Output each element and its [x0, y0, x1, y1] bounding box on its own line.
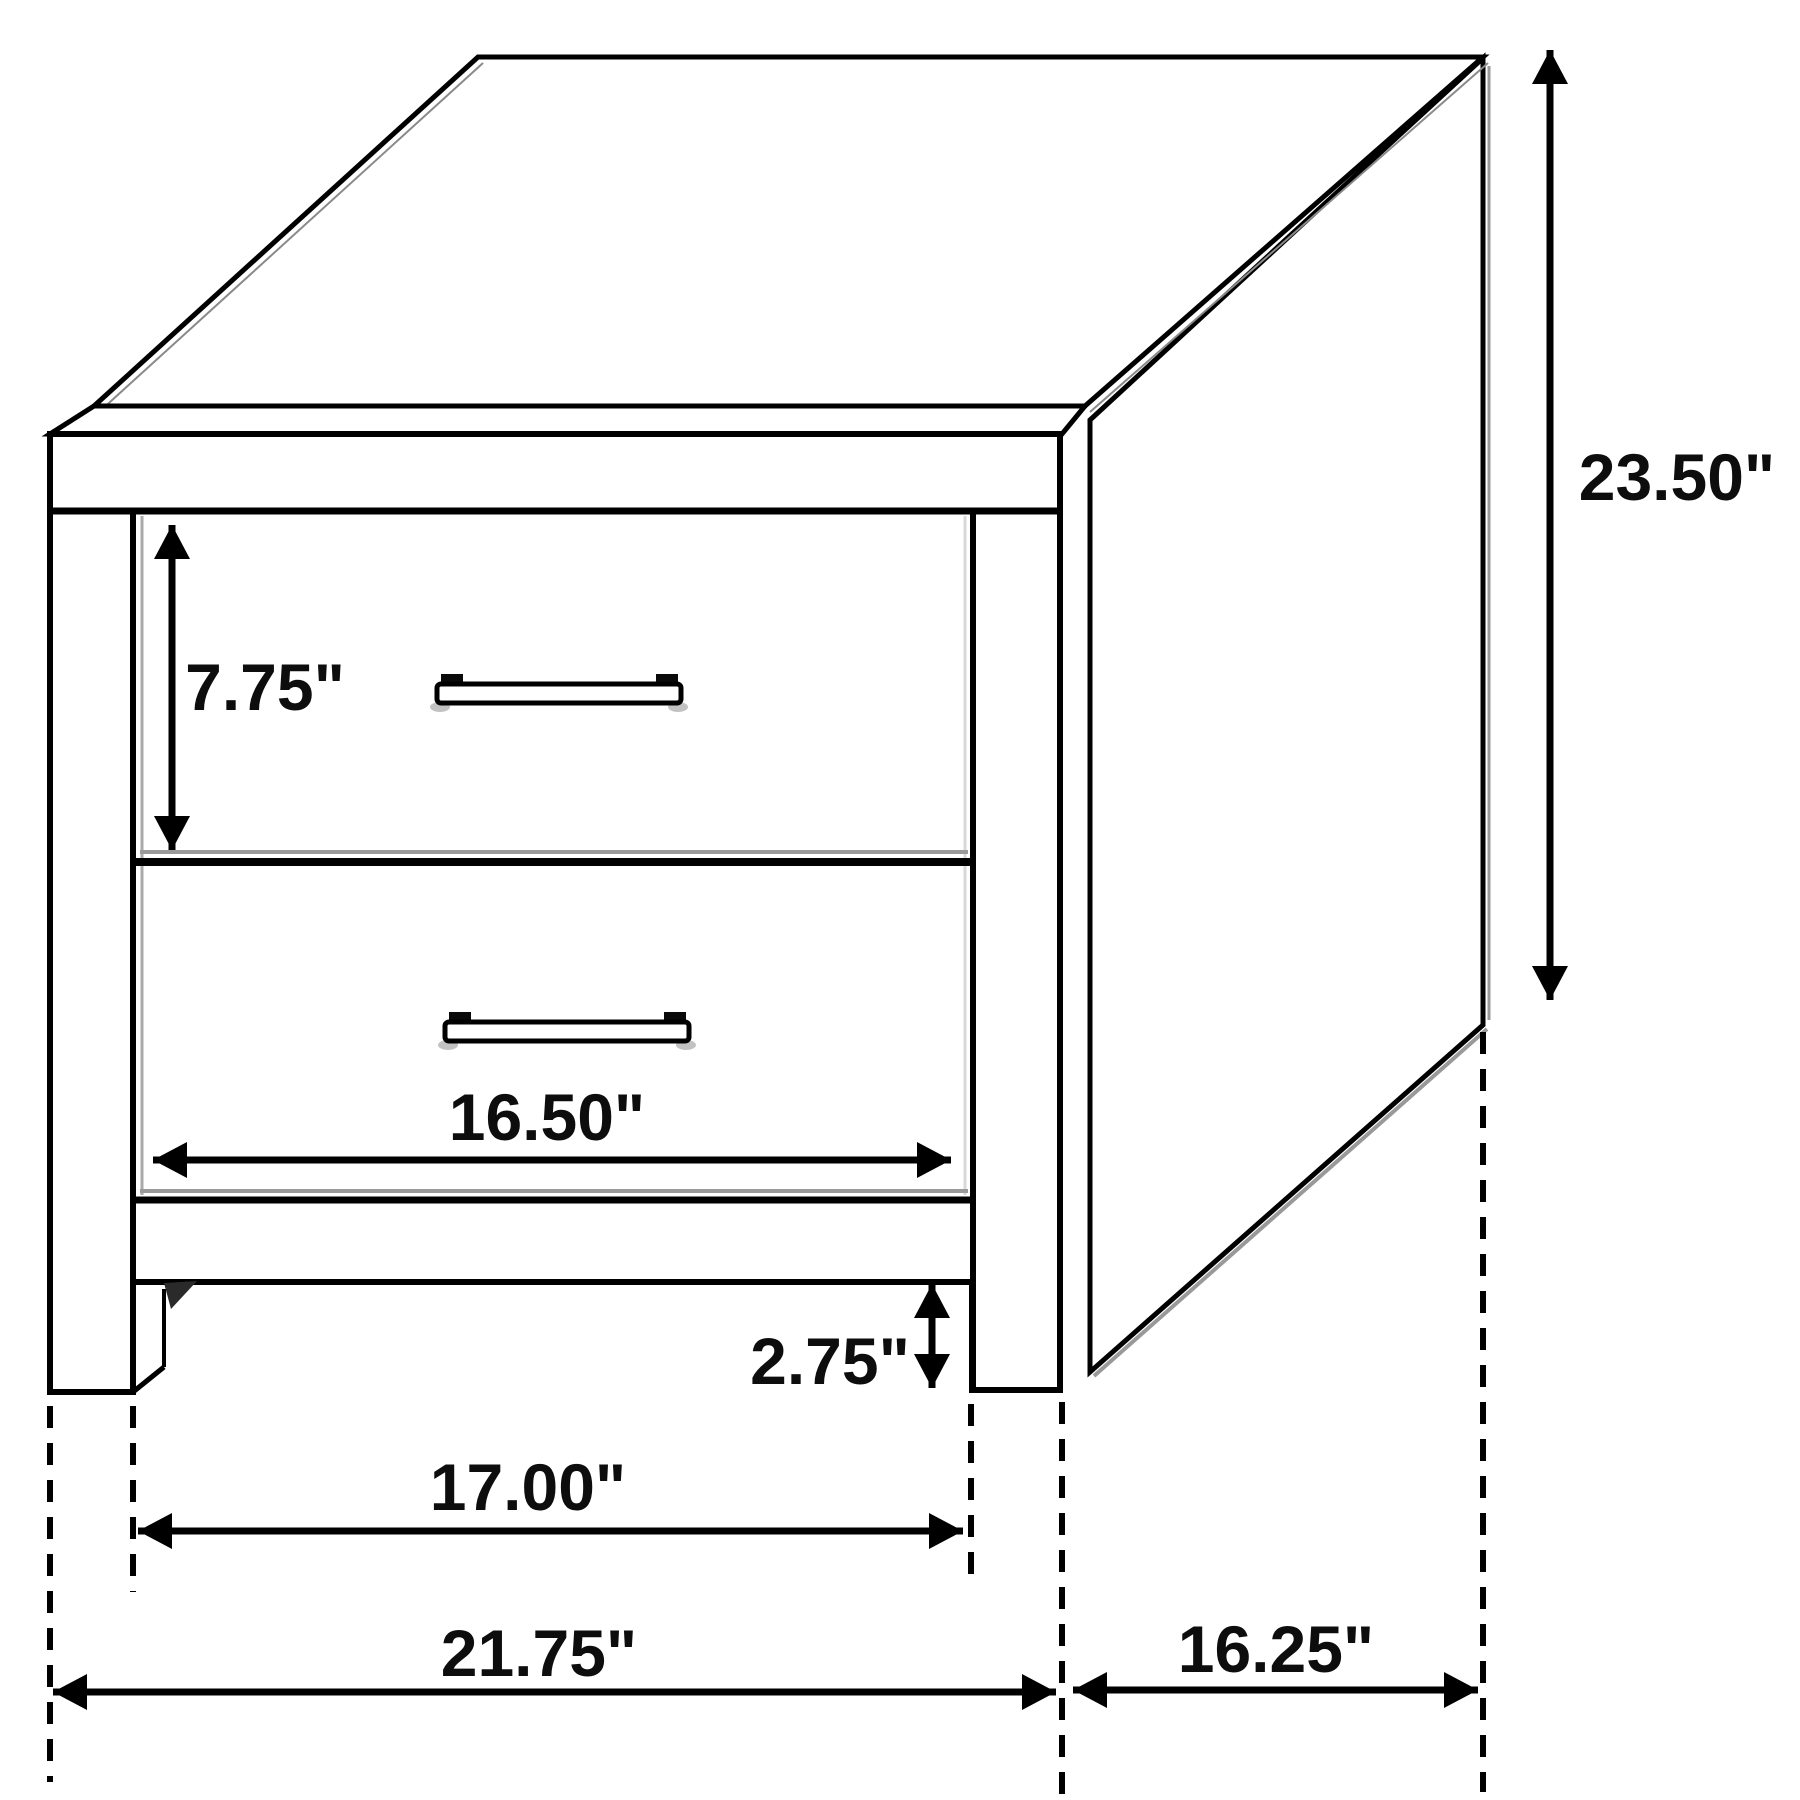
inner-width-label: 17.00" — [430, 1450, 626, 1524]
nightstand-dimension-drawing: 7.75" 23.50" 16.50" 2.75" 17.00" 21.75" … — [0, 0, 1800, 1800]
handle-bar — [437, 684, 681, 703]
drawer-width-label: 16.50" — [449, 1080, 645, 1154]
drawer-height-label: 7.75" — [185, 650, 345, 724]
top-front-edge — [50, 406, 1085, 434]
handle-bar — [445, 1022, 689, 1041]
overall-width-label: 21.75" — [441, 1616, 637, 1690]
drawing-canvas: 7.75" 23.50" 16.50" 2.75" 17.00" 21.75" … — [0, 0, 1800, 1800]
depth-label: 16.25" — [1178, 1612, 1374, 1686]
overall-height-label: 23.50" — [1579, 440, 1775, 514]
front-face — [50, 434, 1060, 1392]
front-frame — [50, 434, 1060, 1392]
leg-height-label: 2.75" — [750, 1324, 910, 1398]
